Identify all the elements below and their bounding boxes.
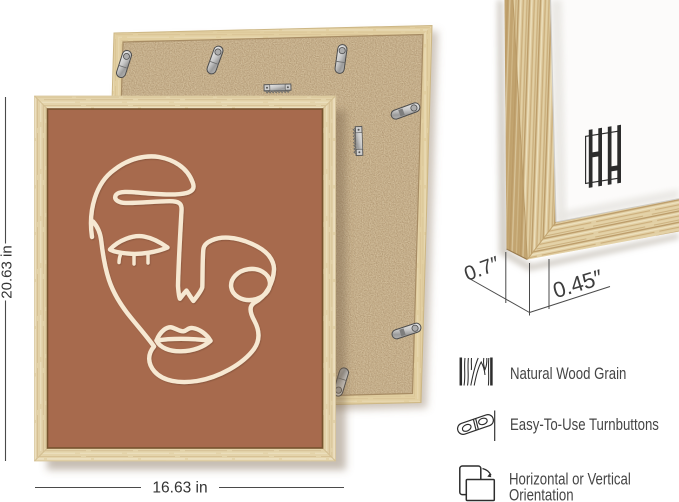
svg-text:16.63 in: 16.63 in — [152, 480, 207, 497]
svg-text:Natural Wood Grain: Natural Wood Grain — [510, 365, 626, 384]
svg-text:20.63 in: 20.63 in — [0, 245, 16, 298]
svg-text:Orientation: Orientation — [509, 486, 574, 502]
svg-text:Easy-To-Use Turnbuttons: Easy-To-Use Turnbuttons — [510, 416, 659, 435]
